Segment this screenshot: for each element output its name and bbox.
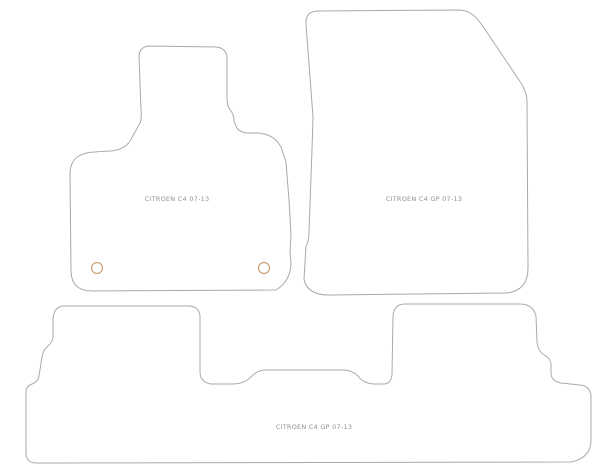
rear-mat-label: CITROEN C4 GP 07-13	[276, 423, 353, 431]
driver-mat: CITROEN C4 07-13	[70, 46, 291, 291]
passenger-mat-label: CITROEN C4 GP 07-13	[386, 195, 463, 203]
driver-mat-label: CITROEN C4 07-13	[145, 195, 210, 203]
rear-mat: CITROEN C4 GP 07-13	[26, 304, 591, 463]
driver-mat-fixing-hole-right	[259, 263, 270, 274]
passenger-mat-outline	[304, 10, 528, 295]
passenger-mat: CITROEN C4 GP 07-13	[304, 10, 528, 295]
rear-mat-outline	[26, 304, 591, 463]
mat-template-drawing: CITROEN C4 07-13 CITROEN C4 GP 07-13 CIT…	[0, 0, 600, 475]
car-mat-set-diagram: CITROEN C4 07-13 CITROEN C4 GP 07-13 CIT…	[0, 0, 600, 475]
driver-mat-outline	[70, 46, 291, 291]
driver-mat-fixing-hole-left	[92, 263, 103, 274]
